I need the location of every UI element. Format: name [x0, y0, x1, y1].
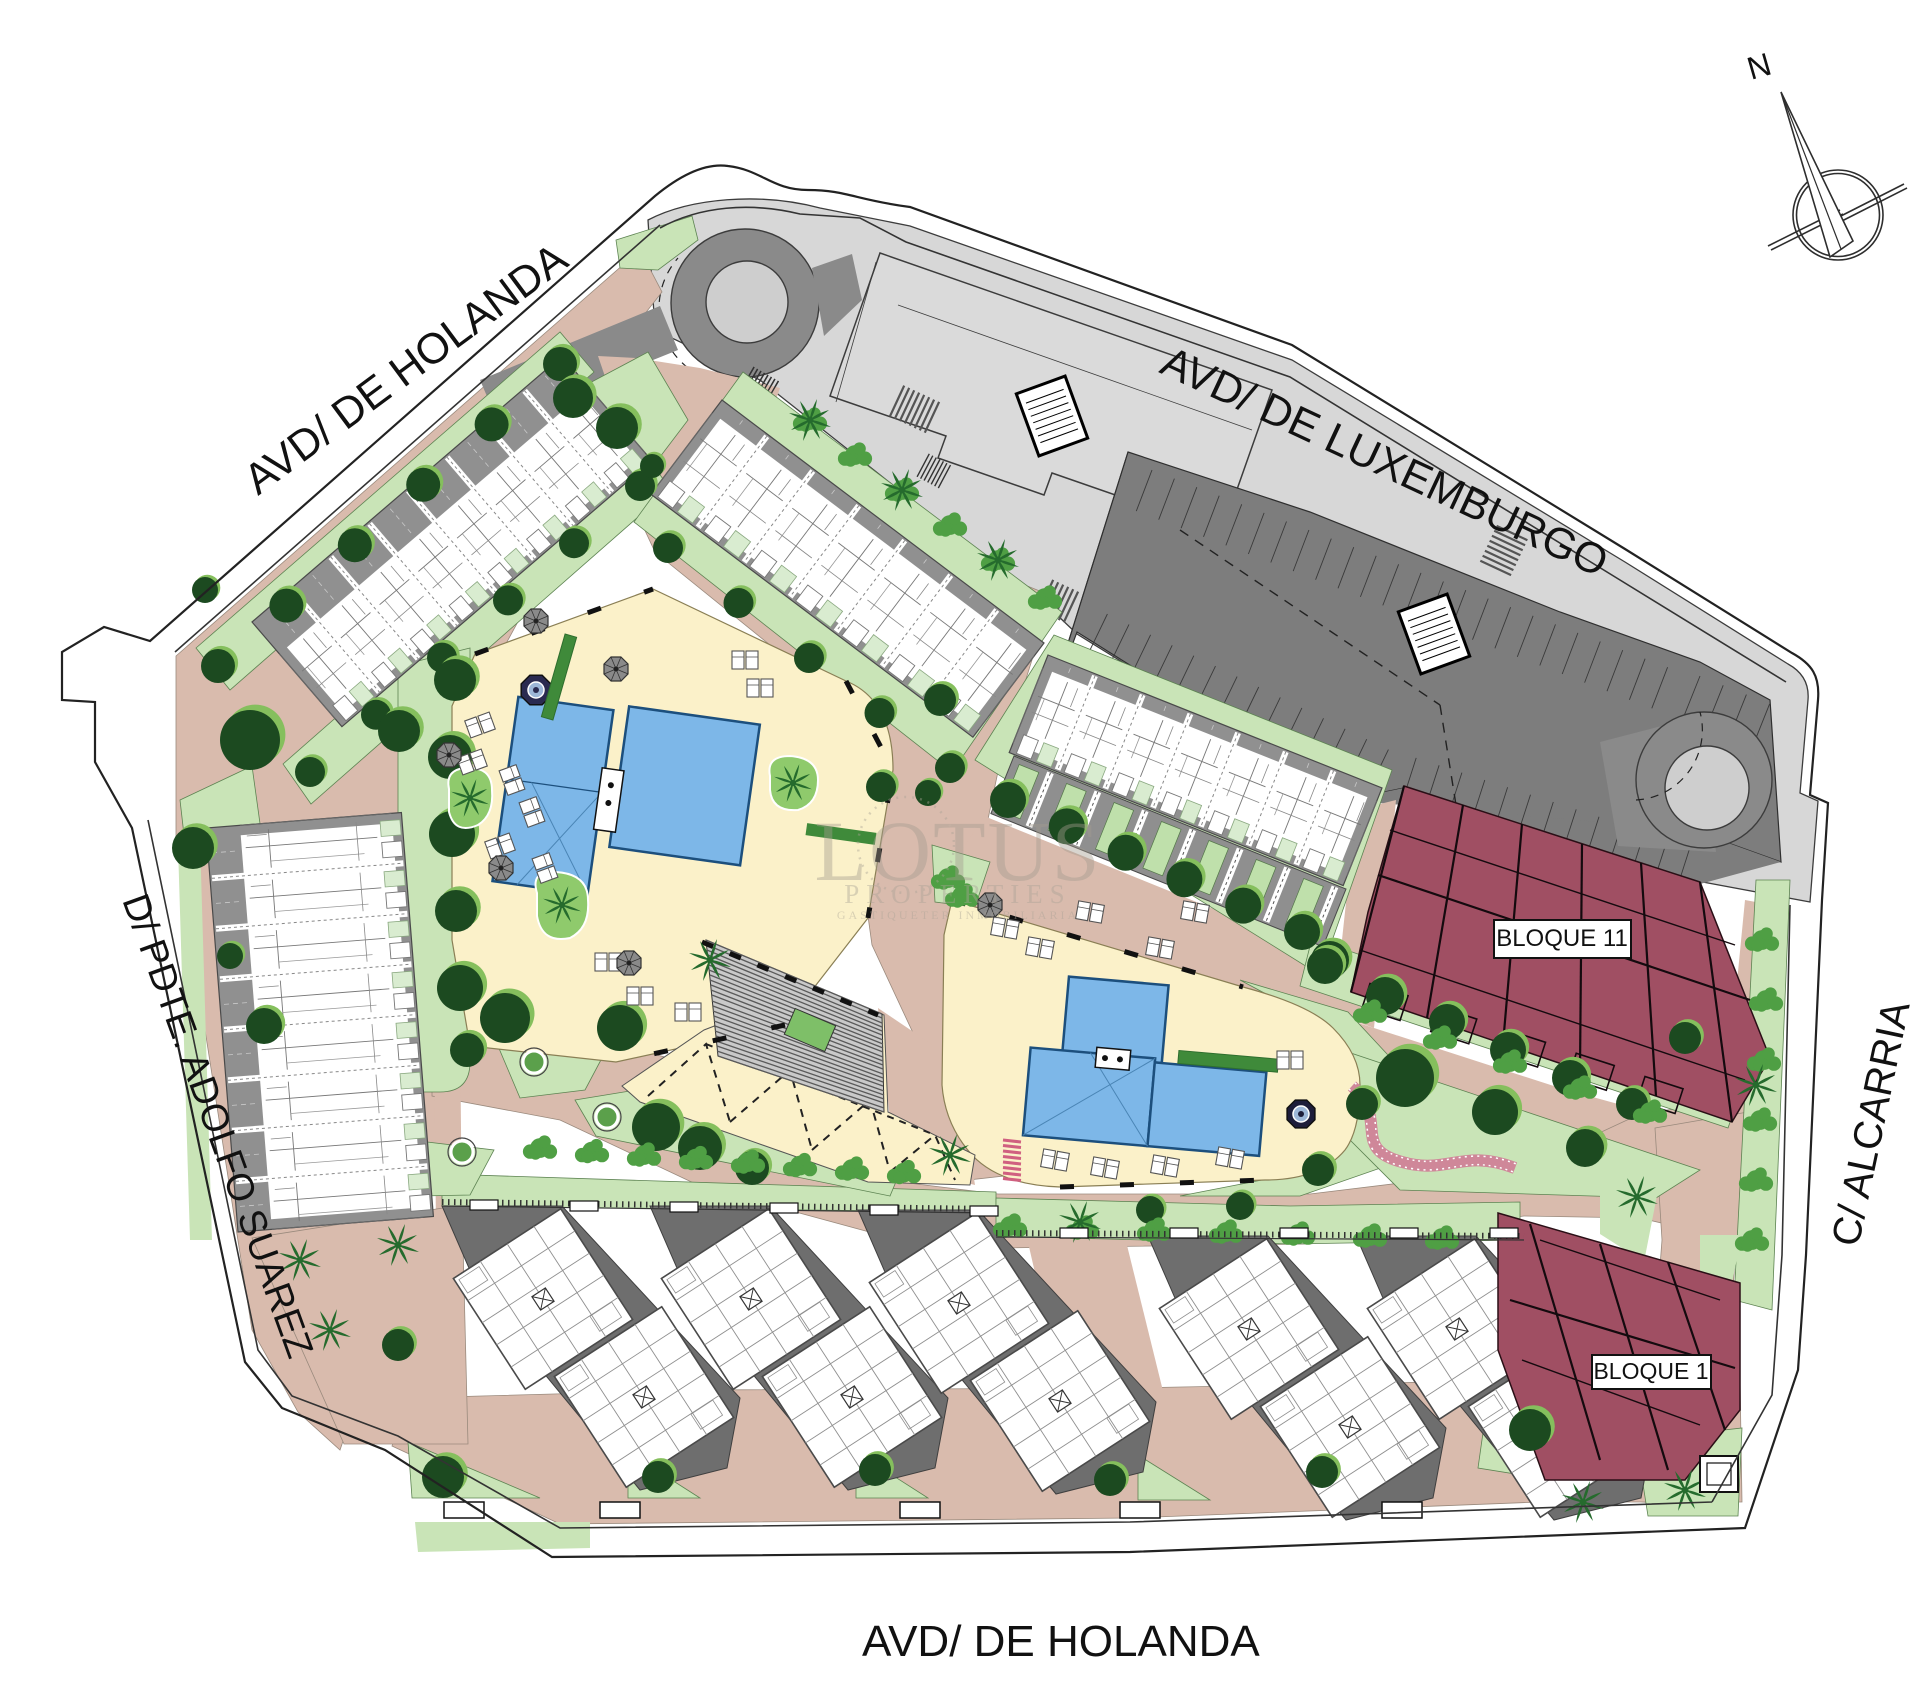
svg-text:BLOQUE 11: BLOQUE 11 — [1496, 925, 1628, 952]
svg-text:AVD/ DE HOLANDA: AVD/ DE HOLANDA — [862, 1617, 1260, 1666]
svg-text:GASTIQUETER INMOBILIARIA: GASTIQUETER INMOBILIARIA — [837, 908, 1079, 922]
svg-text:BLOQUE 1: BLOQUE 1 — [1593, 1358, 1708, 1384]
